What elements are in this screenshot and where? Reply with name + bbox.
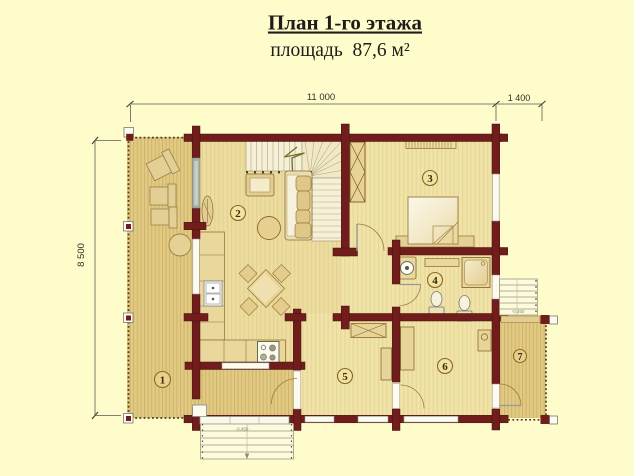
svg-text:8 500: 8 500 (76, 243, 87, 267)
svg-text:-0,450: -0,450 (236, 427, 249, 432)
svg-text:7: 7 (518, 352, 523, 363)
svg-text:6: 6 (442, 361, 448, 373)
svg-text:11 000: 11 000 (307, 92, 335, 103)
svg-text:2: 2 (235, 208, 241, 220)
svg-text:3: 3 (427, 173, 433, 185)
svg-text:-0,450: -0,450 (512, 309, 525, 314)
svg-text:5: 5 (342, 371, 348, 383)
svg-text:1 400: 1 400 (508, 93, 531, 103)
svg-text:4: 4 (432, 275, 438, 287)
svg-text:площадь 87,6 м²: площадь 87,6 м² (270, 40, 409, 61)
svg-text:План 1-го этажа: План 1-го этажа (268, 11, 423, 35)
svg-text:1: 1 (160, 375, 166, 387)
